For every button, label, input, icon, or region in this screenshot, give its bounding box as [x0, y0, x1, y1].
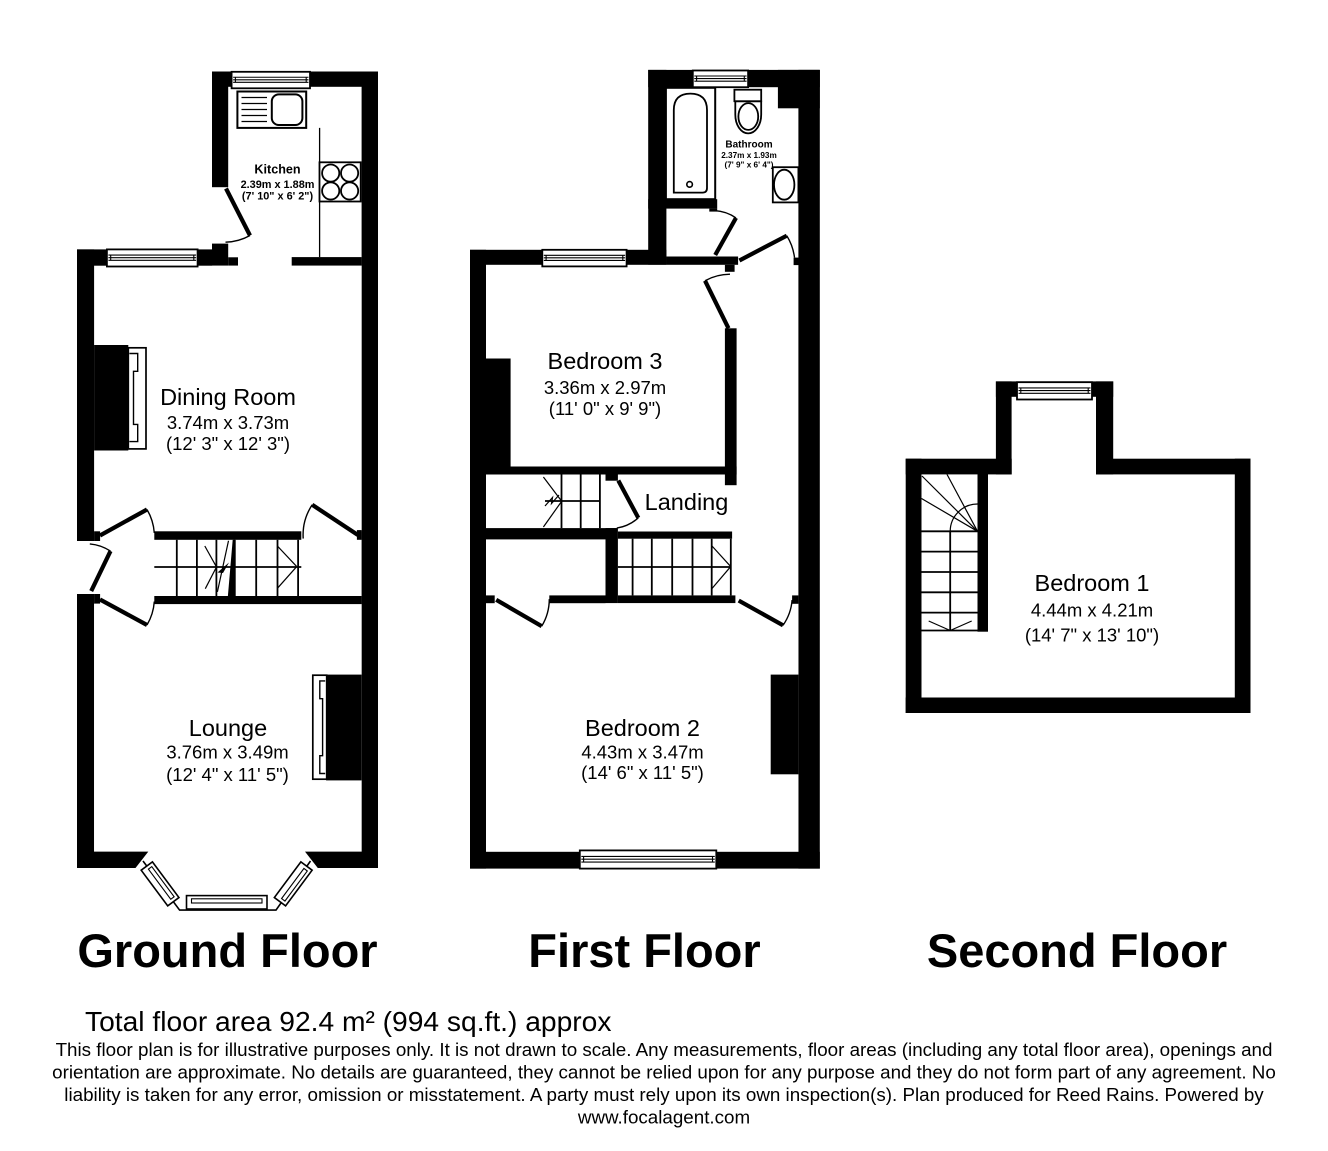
svg-text:(14' 6" x 11' 5"): (14' 6" x 11' 5"): [581, 762, 704, 783]
svg-text:Kitchen: Kitchen: [254, 163, 300, 177]
svg-text:Ground Floor: Ground Floor: [77, 924, 377, 977]
svg-text:Bedroom 1: Bedroom 1: [1035, 570, 1150, 596]
svg-text:(14' 7" x 13' 10"): (14' 7" x 13' 10"): [1025, 625, 1159, 646]
svg-text:2.39m x 1.88m: 2.39m x 1.88m: [241, 179, 315, 191]
svg-text:liability is taken for any err: liability is taken for any error, omissi…: [64, 1084, 1264, 1105]
svg-text:Bathroom: Bathroom: [725, 140, 772, 151]
svg-text:Total floor area 92.4 m² (994: Total floor area 92.4 m² (994 sq.ft.) ap…: [85, 1005, 611, 1037]
svg-text:Lounge: Lounge: [189, 715, 267, 741]
svg-text:orientation are approximate. N: orientation are approximate. No details …: [52, 1062, 1276, 1083]
svg-text:3.74m x 3.73m: 3.74m x 3.73m: [167, 412, 289, 433]
svg-text:Bedroom 2: Bedroom 2: [585, 715, 700, 741]
svg-text:4.44m x 4.21m: 4.44m x 4.21m: [1031, 600, 1153, 621]
svg-text:(12' 4" x 11' 5"): (12' 4" x 11' 5"): [166, 764, 289, 785]
svg-text:4.43m x 3.47m: 4.43m x 3.47m: [581, 742, 703, 763]
svg-text:Second Floor: Second Floor: [927, 924, 1227, 977]
svg-text:Dining Room: Dining Room: [160, 384, 296, 410]
svg-text:This floor plan is for illustr: This floor plan is for illustrative purp…: [56, 1039, 1273, 1060]
svg-text:www.focalagent.com: www.focalagent.com: [577, 1107, 750, 1128]
svg-text:First Floor: First Floor: [528, 924, 760, 977]
svg-text:(7' 10" x 6' 2"): (7' 10" x 6' 2"): [242, 191, 314, 203]
svg-text:(12' 3" x 12' 3"): (12' 3" x 12' 3"): [166, 433, 290, 454]
svg-text:3.76m x 3.49m: 3.76m x 3.49m: [166, 742, 288, 763]
svg-text:(11' 0" x 9' 9"): (11' 0" x 9' 9"): [549, 398, 661, 419]
svg-text:Landing: Landing: [645, 489, 729, 515]
svg-text:2.37m x 1.93m: 2.37m x 1.93m: [721, 151, 777, 160]
svg-text:Bedroom 3: Bedroom 3: [548, 348, 663, 374]
svg-text:(7' 9" x 6' 4"): (7' 9" x 6' 4"): [725, 161, 774, 170]
svg-text:3.36m x 2.97m: 3.36m x 2.97m: [544, 377, 666, 398]
